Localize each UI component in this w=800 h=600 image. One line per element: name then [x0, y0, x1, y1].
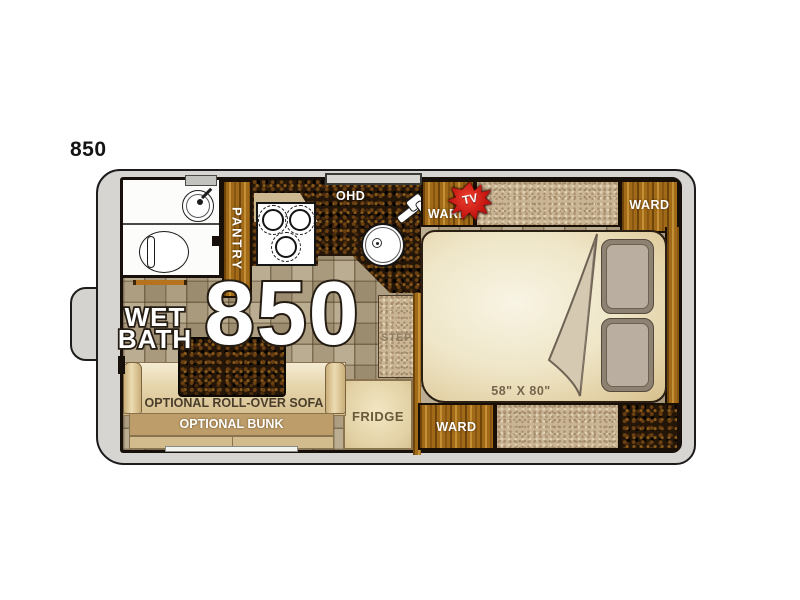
ohd-label: OHD	[336, 189, 365, 203]
toilet-tank-bar	[147, 236, 155, 268]
entry-step: STEP	[378, 295, 415, 378]
model-number-watermark: 850	[185, 272, 380, 360]
blanket-fold-icon	[535, 230, 605, 402]
wardrobe-bottom: WARD	[418, 403, 495, 450]
threshold-trim	[133, 280, 187, 285]
bathroom-sink-inner	[186, 194, 210, 218]
floorplan-canvas: 850 PANTRY	[0, 0, 800, 600]
stove-burner-icon	[262, 209, 284, 231]
fridge: FRIDGE	[343, 379, 413, 450]
wardrobe-top-right-label: WARD	[622, 198, 677, 212]
entry-door	[165, 446, 298, 452]
wet-bath-label: WET BATH	[117, 306, 193, 350]
interior-floor: PANTRY WARD WARD	[120, 177, 682, 453]
headboard	[475, 180, 620, 227]
bed: 58" X 80"	[421, 230, 667, 403]
pillow	[601, 318, 654, 392]
counter-bottom-right	[620, 403, 679, 450]
fridge-label: FRIDGE	[345, 409, 411, 424]
optional-sofa-label: OPTIONAL ROLL-OVER SOFA	[128, 396, 340, 410]
bathroom-divider	[123, 223, 219, 225]
pillow	[601, 239, 654, 314]
wall-stub	[118, 356, 125, 374]
stove-burner-icon	[289, 209, 311, 231]
optional-bunk-label: OPTIONAL BUNK	[130, 417, 333, 431]
kitchen-sink-drain-dot	[376, 242, 379, 245]
bench-seat	[495, 403, 620, 450]
tv-star-icon: TV	[448, 182, 492, 222]
bathroom-door-latch	[212, 236, 219, 246]
kitchen-sink-inner	[365, 227, 401, 263]
model-label: 850	[70, 138, 107, 162]
stove-icon	[256, 202, 316, 266]
stove-burner-icon	[275, 236, 297, 258]
bed-size-label: 58" X 80"	[472, 384, 570, 398]
bathroom-vent	[185, 175, 217, 186]
bathroom-faucet-icon	[197, 199, 203, 205]
wardrobe-bottom-label: WARD	[420, 420, 493, 434]
wet-bath-line2: BATH	[117, 328, 193, 350]
ohd-cabinet	[325, 173, 422, 185]
wardrobe-top-right: WARD	[620, 180, 679, 233]
bunk-band: OPTIONAL BUNK	[129, 413, 334, 436]
step-label: STEP	[379, 332, 414, 344]
bed-side-wood-trim	[665, 227, 679, 403]
